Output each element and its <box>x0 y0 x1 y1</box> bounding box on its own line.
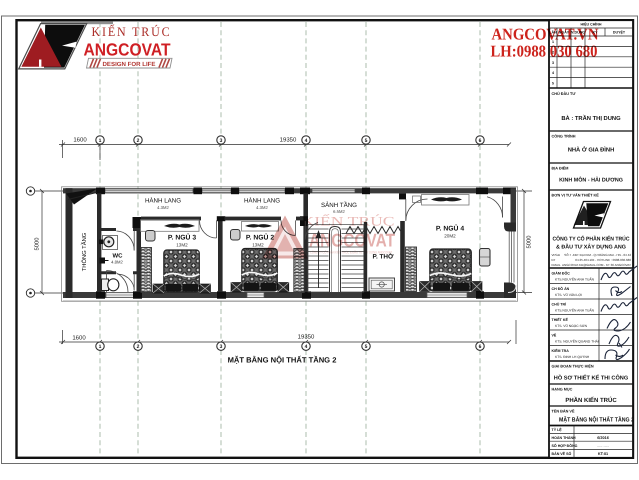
svg-text:GIÁM ĐỐC: GIÁM ĐỐC <box>552 271 571 276</box>
svg-text:3: 3 <box>220 344 223 350</box>
svg-text:VPGD: VPGD <box>552 253 561 257</box>
svg-text:..... .....: ..... ..... <box>597 444 609 448</box>
svg-text:KIỂM TRA: KIỂM TRA <box>552 348 570 353</box>
svg-text:HÀNH LANG: HÀNH LANG <box>145 197 181 205</box>
svg-text:NHÀ Ở GIA ĐÌNH: NHÀ Ở GIA ĐÌNH <box>568 146 615 154</box>
svg-text:SỐ 7 -KĐT ĐẠI KIM - Q.HOÀNG MA: SỐ 7 -KĐT ĐẠI KIM - Q.HOÀNG MAI - HN - 0… <box>564 253 631 257</box>
svg-text:4: 4 <box>552 71 554 75</box>
svg-text:KTS.NGUYỄN ANH TUẤN: KTS.NGUYỄN ANH TUẤN <box>555 278 595 282</box>
svg-text:MẶT BẰNG NỘI THẤT TẦNG 2: MẶT BẰNG NỘI THẤT TẦNG 2 <box>228 356 337 365</box>
svg-text:5000: 5000 <box>34 238 41 251</box>
svg-text:ĐT: ĐT <box>552 258 556 262</box>
svg-text:WC: WC <box>113 253 124 260</box>
svg-text:CÔNG TY CỔ PHẦN KIẾN TRÚC & ĐẦ: CÔNG TY CỔ PHẦN KIẾN TRÚC & ĐẦU TƯ XÂY D… <box>310 250 393 255</box>
svg-text:CH ĐỒ ÁN: CH ĐỒ ÁN <box>552 286 570 291</box>
svg-text:5: 5 <box>552 82 554 86</box>
svg-text:P. NGỦ 3: P. NGỦ 3 <box>168 233 196 242</box>
svg-text:13M2: 13M2 <box>252 243 264 248</box>
svg-text:ANGCOVAT: ANGCOVAT <box>84 40 171 60</box>
svg-text:ĐỊA ĐIỂM: ĐỊA ĐIỂM <box>552 166 569 171</box>
svg-text:BÀ : TRẦN THỊ DUNG: BÀ : TRẦN THỊ DUNG <box>561 114 621 122</box>
svg-text:GIAI ĐOẠN THỰC HIỆN: GIAI ĐOẠN THỰC HIỆN <box>552 364 594 369</box>
svg-text:1: 1 <box>99 344 102 350</box>
svg-text:LH:0988 030 680: LH:0988 030 680 <box>491 42 598 61</box>
svg-text:HỒ SƠ THIẾT KẾ THI CÔNG: HỒ SƠ THIẾT KẾ THI CÔNG <box>554 374 628 382</box>
svg-text:HOÀN THÀNH: HOÀN THÀNH <box>552 435 577 440</box>
svg-text:CÔNG TRÌNH: CÔNG TRÌNH <box>552 134 576 139</box>
svg-text:1600: 1600 <box>73 137 87 144</box>
svg-text:2: 2 <box>137 344 140 350</box>
svg-text:4.3M2: 4.3M2 <box>256 205 268 210</box>
svg-text:3: 3 <box>220 138 223 144</box>
svg-text:KTS. VŨ NGỌC SƠN: KTS. VŨ NGỌC SƠN <box>555 324 588 328</box>
svg-text:DESIGN FOR LIFE: DESIGN FOR LIFE <box>103 61 156 68</box>
svg-text:PHẦN KIẾN TRÚC: PHẦN KIẾN TRÚC <box>565 396 617 404</box>
svg-text:4.8M2: 4.8M2 <box>111 260 123 265</box>
svg-text:4: 4 <box>305 138 308 144</box>
svg-text:CÔNG TY CỔ PHẦN KIẾN TRÚC: CÔNG TY CỔ PHẦN KIẾN TRÚC <box>553 236 630 243</box>
svg-text:6: 6 <box>479 138 482 144</box>
svg-text:KIẾN TRÚC: KIẾN TRÚC <box>302 214 395 229</box>
svg-text:2: 2 <box>137 138 140 144</box>
svg-text:P. NGỦ 2: P. NGỦ 2 <box>246 233 274 242</box>
svg-text:1: 1 <box>99 138 102 144</box>
svg-text:THÔNG TẦNG: THÔNG TẦNG <box>80 232 88 271</box>
svg-text:BẢN VẼ SỐ: BẢN VẼ SỐ <box>552 451 572 456</box>
svg-text:EMAIL: EMAIL <box>552 263 561 267</box>
svg-text:5000: 5000 <box>526 236 533 249</box>
svg-text:KTS. ĐINH LH QUỲNH: KTS. ĐINH LH QUỲNH <box>555 355 590 359</box>
svg-text:KTS. NGUYỄN QUANG THÁI: KTS. NGUYỄN QUANG THÁI <box>555 340 599 344</box>
svg-text:KIẾN TRÚC: KIẾN TRÚC <box>92 24 172 39</box>
svg-text:5: 5 <box>365 138 368 144</box>
svg-text:04.35.404.104 - HOTLINE : 0988: 04.35.404.104 - HOTLINE : 0988.030.680 <box>575 258 631 262</box>
svg-text:KINH MÔN - HẢI DƯƠNG: KINH MÔN - HẢI DƯƠNG <box>559 177 623 184</box>
svg-text:VẼ: VẼ <box>552 333 557 338</box>
svg-text:CHỦ TRÌ: CHỦ TRÌ <box>552 302 567 307</box>
svg-text:4: 4 <box>305 344 308 350</box>
svg-text:THIẾT KẾ: THIẾT KẾ <box>552 317 569 322</box>
svg-text:P. NGỦ 4: P. NGỦ 4 <box>436 224 464 233</box>
svg-text:5: 5 <box>365 344 368 350</box>
svg-text:KTS.NGUYỄN ANH TUẤN: KTS.NGUYỄN ANH TUẤN <box>555 309 595 313</box>
svg-text:6: 6 <box>479 344 482 350</box>
svg-text:TÊN BẢN VẼ: TÊN BẢN VẼ <box>552 409 575 414</box>
svg-text:6/2016: 6/2016 <box>597 436 609 440</box>
svg-text:HÀNH LANG: HÀNH LANG <box>244 197 280 205</box>
svg-text:TỶ LỆ: TỶ LỆ <box>552 427 563 432</box>
svg-text:MẶT BẰNG NỘI THẤT TẦNG 2: MẶT BẰNG NỘI THẤT TẦNG 2 <box>559 416 635 424</box>
svg-text:ANGCOVAT.KD@GMAIL.COM - KT 36: ANGCOVAT.KD@GMAIL.COM - KT 36 ANGCOVAT <box>562 263 631 267</box>
svg-text:4.3M2: 4.3M2 <box>157 205 169 210</box>
svg-text:1600: 1600 <box>72 335 86 342</box>
svg-text:KT-01: KT-01 <box>598 452 608 456</box>
svg-text:3: 3 <box>552 61 554 65</box>
svg-text:KTS. VŨ VĂN LỢI: KTS. VŨ VĂN LỢI <box>555 293 582 297</box>
svg-text:ĐƠN VỊ TƯ VẤN THIẾT KẾ: ĐƠN VỊ TƯ VẤN THIẾT KẾ <box>552 193 600 198</box>
svg-text:13M2: 13M2 <box>176 243 188 248</box>
svg-text:HẠNG MỤC: HẠNG MỤC <box>552 388 573 392</box>
svg-text:20M2: 20M2 <box>444 234 456 239</box>
svg-text:& ĐẦU TƯ XÂY DỰNG ANG: & ĐẦU TƯ XÂY DỰNG ANG <box>556 244 626 251</box>
svg-text:ANGCOVAT: ANGCOVAT <box>309 230 396 251</box>
svg-text:SỐ HỢP ĐỒNG: SỐ HỢP ĐỒNG <box>552 443 578 448</box>
svg-text:19350: 19350 <box>298 334 315 341</box>
svg-text:DUYỆT: DUYỆT <box>613 30 626 35</box>
svg-text:19350: 19350 <box>280 137 297 144</box>
svg-text:SẢNH TẦNG: SẢNH TẦNG <box>321 201 357 209</box>
svg-text:CHỦ ĐẦU TƯ: CHỦ ĐẦU TƯ <box>552 91 577 96</box>
